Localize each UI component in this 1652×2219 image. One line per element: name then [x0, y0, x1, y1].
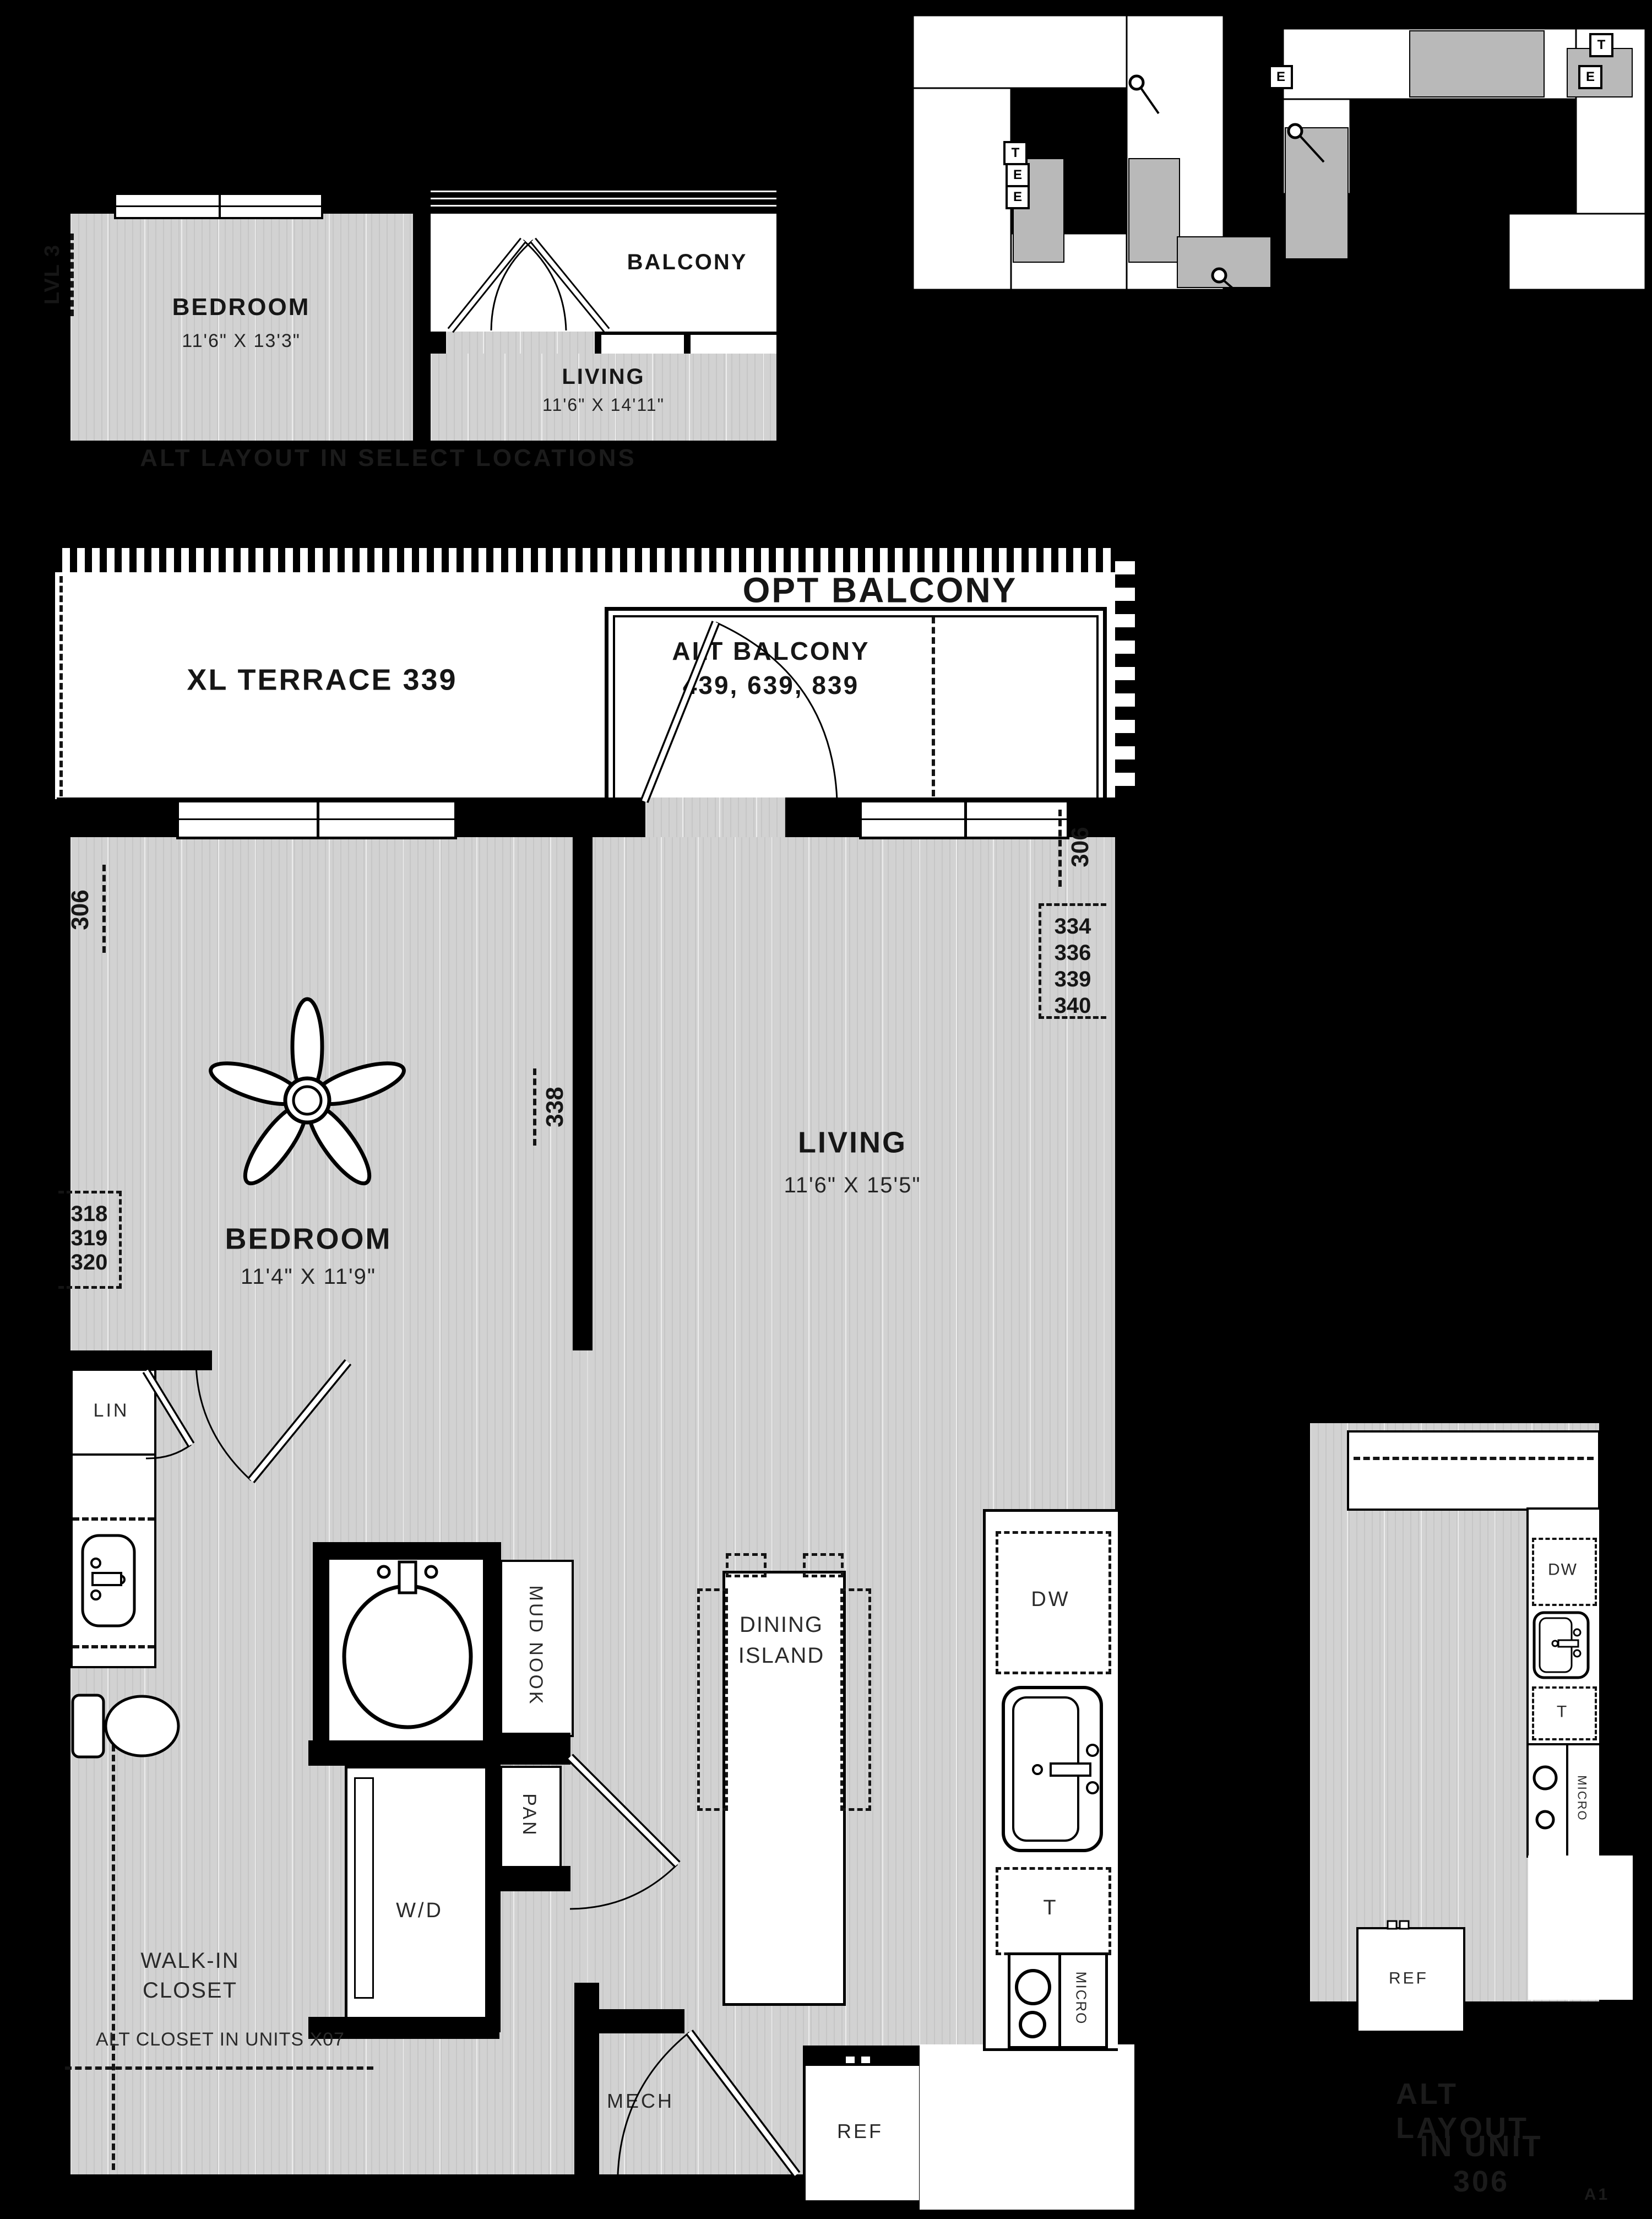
keyplan-elevator-label: E [1586, 69, 1595, 85]
toilet-icon [73, 1695, 178, 1757]
kitchen-sink-icon [1003, 1688, 1101, 1851]
vanity-sink-icon [83, 1536, 134, 1626]
door-swings [146, 240, 837, 2174]
closet-door-icon [196, 1362, 348, 1480]
keyplan-elevator-badge: E [1006, 163, 1030, 187]
bathtub-icon [344, 1562, 471, 1727]
keyplan-trash-badge: T [1003, 141, 1028, 165]
range-burners-icon [1017, 1971, 1050, 2037]
floorplan-page: LVL 3 BEDROOM 11'6" X 13'3" BALCONY LIVI… [0, 0, 1652, 2219]
french-door-icon [450, 240, 607, 330]
alt306-burners-icon [1534, 1767, 1556, 1828]
balcony-door-icon [644, 622, 837, 801]
keyplan-trash-label: T [1012, 145, 1020, 161]
fixtures-overlay [0, 0, 1652, 2219]
keyplan-elevator-label: E [1276, 69, 1285, 85]
alt306-sink-icon [1534, 1613, 1588, 1678]
ceiling-fan-icon [206, 999, 409, 1191]
hall-door-icon [570, 1757, 677, 1909]
alt306-ref-handles-icon [1388, 1921, 1409, 1929]
bedroom-door-icon [146, 1371, 191, 1458]
entry-door-icon [618, 2032, 797, 2174]
keyplan-trash-label: T [1597, 37, 1606, 53]
ref-handles-icon [845, 2055, 871, 2064]
keyplan-elevator-label: E [1013, 189, 1022, 205]
keyplan-elevator-badge: E [1578, 65, 1602, 89]
keyplan-elevator-badge: E [1006, 185, 1030, 209]
keyplan-trash-badge: T [1589, 33, 1613, 57]
keyplan-elevator-label: E [1013, 167, 1022, 183]
keyplan-elevator-badge: E [1269, 65, 1293, 89]
